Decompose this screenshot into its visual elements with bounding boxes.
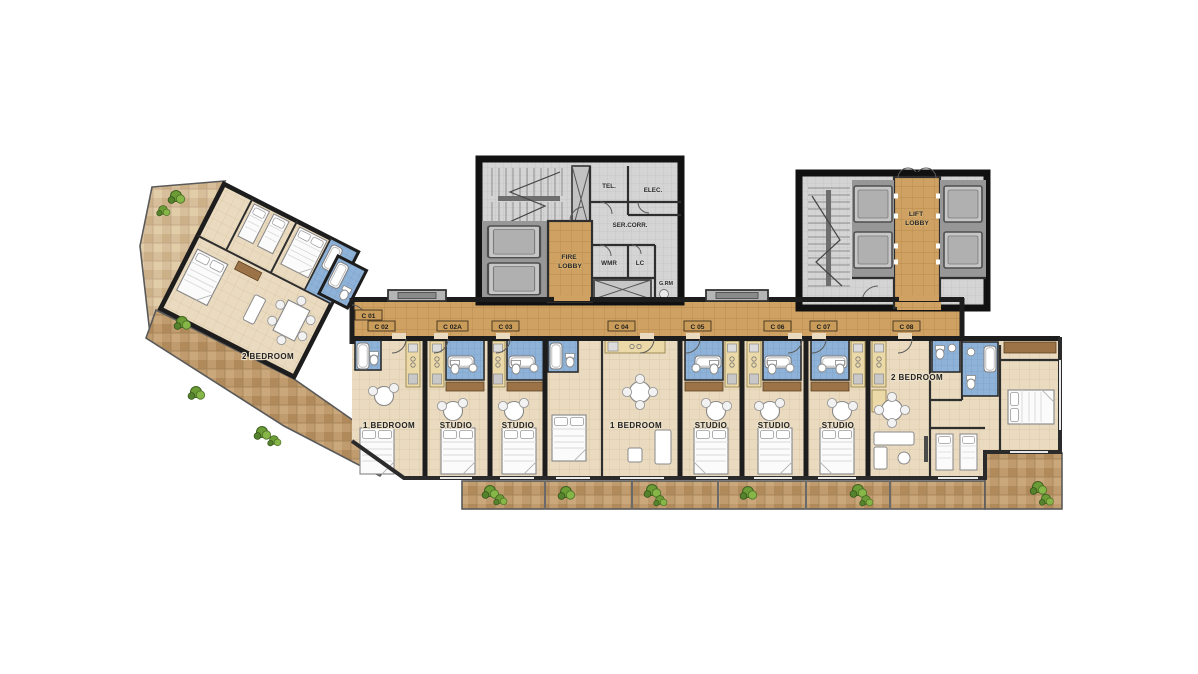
room-label-c03: STUDIO (502, 421, 535, 430)
floor-plan-svg: TEL. ELEC. SER.CORR. WMR LC G.RM FIRE LO… (0, 0, 1198, 674)
ac-unit-icon (716, 293, 758, 299)
unit-badge-c08: C 08 (893, 321, 920, 331)
room-label-c06: STUDIO (758, 421, 791, 430)
room-label-c05: STUDIO (695, 421, 728, 430)
ac-unit-icon (398, 293, 436, 299)
room-label-c01: 2 BEDROOM (242, 352, 294, 361)
sofa-icon (655, 430, 671, 464)
bed-icon (936, 434, 953, 470)
unit-badge-c03: C 03 (492, 321, 519, 331)
room-label-wmr: WMR (601, 260, 617, 267)
toilet-icon (566, 354, 575, 368)
bed-icon (960, 434, 977, 470)
coffee-table-icon (898, 452, 910, 464)
room-label-grm: G.RM (659, 281, 674, 287)
bed-icon (1008, 390, 1054, 424)
unit-badge-c05: C 05 (684, 321, 711, 331)
armchair-icon (628, 448, 642, 462)
svg-text:C 02A: C 02A (443, 324, 462, 331)
svg-text:C 04: C 04 (615, 324, 629, 331)
sofa-icon (874, 432, 914, 445)
toilet-icon (967, 376, 976, 390)
shrub-icon (254, 427, 271, 440)
room-label-c02a: STUDIO (440, 421, 473, 430)
core-right: LIFT LOBBY (799, 168, 987, 308)
sofa-icon (874, 447, 887, 469)
lift-icon (488, 226, 540, 258)
lift-icon (854, 186, 892, 222)
fire-lobby (548, 221, 592, 302)
bathtub-icon (984, 346, 996, 372)
duct-shaft (594, 280, 651, 299)
terrace-south-strip (462, 481, 985, 509)
bathtub-icon (550, 343, 562, 369)
svg-text:C 01: C 01 (362, 313, 376, 320)
toilet-icon (936, 346, 945, 360)
room-label-c08: 2 BEDROOM (891, 373, 943, 382)
unit-badge-c07: C 07 (810, 321, 837, 331)
lift-icon (488, 263, 540, 295)
core-left: TEL. ELEC. SER.CORR. WMR LC G.RM FIRE LO… (479, 159, 681, 302)
kitchen-icon (872, 341, 886, 387)
wardrobe-icon (1004, 342, 1056, 353)
lift-icon (854, 232, 892, 268)
lift-icon (944, 232, 982, 268)
svg-text:C 03: C 03 (499, 324, 513, 331)
unit-badge-c04: C 04 (608, 321, 635, 331)
svg-text:C 05: C 05 (691, 324, 705, 331)
kitchen-icon (406, 341, 420, 387)
bathtub-icon (357, 343, 369, 369)
floor-plan-page: TEL. ELEC. SER.CORR. WMR LC G.RM FIRE LO… (0, 0, 1198, 674)
shrub-icon (188, 387, 205, 400)
bed-icon (552, 415, 586, 461)
room-label-elec: ELEC. (644, 187, 663, 194)
stairs-icon (806, 182, 852, 302)
room-label-lc: LC (636, 260, 645, 267)
toilet-icon (370, 352, 379, 366)
room-label-tel: TEL. (602, 183, 616, 190)
room-label-sercorr: SER.CORR. (613, 222, 648, 229)
unit-badge-c06: C 06 (764, 321, 791, 331)
unit-badge-c02a: C 02A (437, 321, 468, 331)
lift-icon (944, 186, 982, 222)
lift-lobby (894, 177, 940, 308)
unit-badge-c01: C 01 (355, 310, 382, 320)
svg-text:C 06: C 06 (771, 324, 785, 331)
svg-text:C 02: C 02 (375, 324, 389, 331)
room-label-c02: 1 BEDROOM (363, 421, 415, 430)
room-label-c07: STUDIO (822, 421, 855, 430)
unit-badge-c02: C 02 (368, 321, 395, 331)
room-label-c04: 1 BEDROOM (610, 421, 662, 430)
sink-icon (967, 348, 975, 356)
sink-icon (948, 344, 956, 352)
tv-icon (924, 436, 928, 462)
svg-text:C 08: C 08 (900, 324, 914, 331)
svg-text:C 07: C 07 (817, 324, 831, 331)
